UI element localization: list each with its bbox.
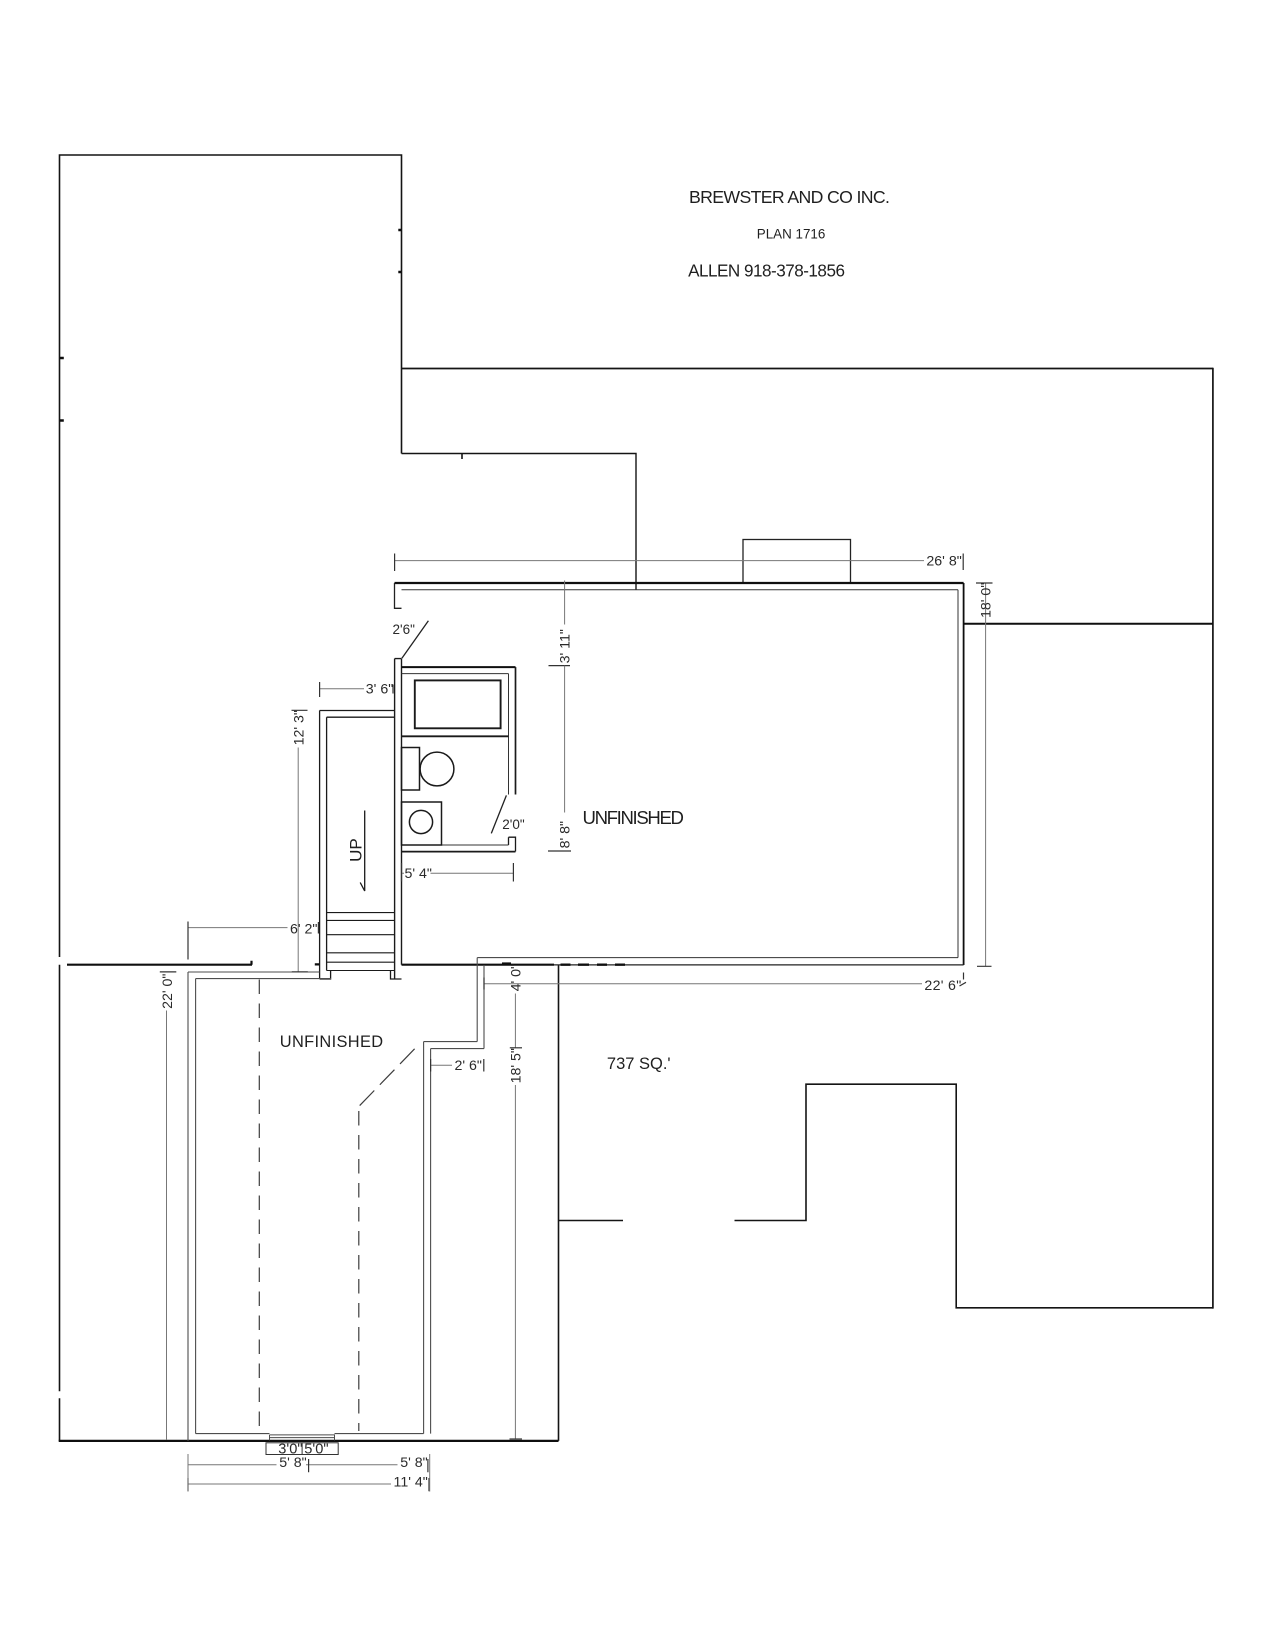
svg-text:22' 0": 22' 0" bbox=[160, 974, 176, 1009]
svg-text:18' 0": 18' 0" bbox=[978, 583, 994, 618]
svg-text:UNFINISHED: UNFINISHED bbox=[583, 807, 684, 828]
svg-text:5'0": 5'0" bbox=[304, 1441, 328, 1457]
svg-text:2' 6": 2' 6" bbox=[455, 1058, 482, 1074]
svg-text:22' 6": 22' 6" bbox=[924, 978, 961, 994]
svg-text:11' 4": 11' 4" bbox=[394, 1475, 428, 1491]
svg-text:BREWSTER AND CO INC.: BREWSTER AND CO INC. bbox=[689, 187, 889, 207]
svg-text:ALLEN 918-378-1856: ALLEN 918-378-1856 bbox=[688, 261, 844, 280]
svg-text:8' 8": 8' 8" bbox=[558, 821, 574, 848]
svg-text:12' 3": 12' 3" bbox=[292, 710, 308, 745]
svg-text:18' 5": 18' 5" bbox=[508, 1048, 524, 1083]
svg-text:26' 8": 26' 8" bbox=[926, 553, 961, 569]
svg-text:5' 4": 5' 4" bbox=[405, 866, 432, 882]
svg-text:5' 8": 5' 8" bbox=[279, 1455, 306, 1471]
svg-text:4' 0": 4' 0" bbox=[508, 964, 524, 991]
svg-text:5' 8": 5' 8" bbox=[400, 1455, 427, 1471]
svg-text:2'6": 2'6" bbox=[393, 622, 416, 637]
svg-text:6' 2": 6' 2" bbox=[290, 921, 317, 937]
svg-text:PLAN 1716: PLAN 1716 bbox=[757, 226, 826, 241]
svg-text:737 SQ.': 737 SQ.' bbox=[607, 1055, 671, 1073]
svg-text:UNFINISHED: UNFINISHED bbox=[280, 1033, 384, 1051]
svg-text:3' 6": 3' 6" bbox=[366, 681, 393, 697]
svg-text:2'0": 2'0" bbox=[502, 817, 525, 832]
svg-text:3' 11": 3' 11" bbox=[557, 629, 573, 663]
svg-text:UP: UP bbox=[347, 838, 366, 862]
